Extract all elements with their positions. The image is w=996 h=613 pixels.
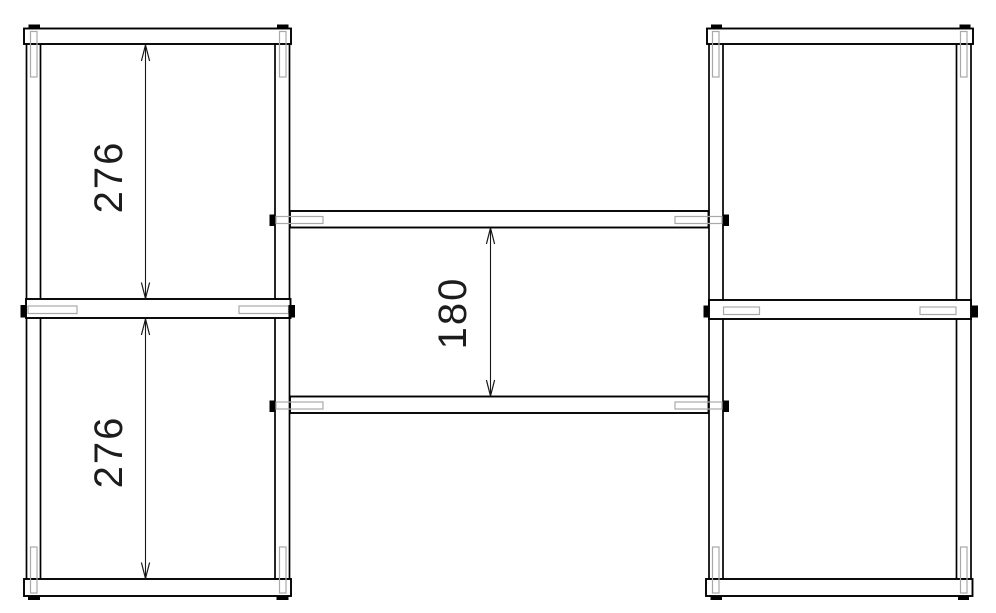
- connector-bolt: [21, 305, 27, 318]
- frame-assembly-drawing: 276 276 180: [0, 0, 996, 613]
- connector-bolt: [724, 401, 730, 413]
- dimension-lower-left-276: 276: [87, 319, 150, 579]
- right-side-frame: [706, 29, 973, 597]
- dimension-label: 276: [87, 416, 131, 489]
- connector-bolt: [972, 306, 978, 318]
- dimension-center-180: 180: [431, 228, 495, 396]
- connector-bolt: [270, 215, 276, 227]
- post-cap: [29, 25, 41, 30]
- post-cap: [711, 25, 722, 30]
- connector-bolt: [704, 306, 710, 318]
- post-cap: [960, 25, 971, 30]
- connector-bolt: [289, 305, 296, 318]
- upper-cross-rail: [290, 211, 709, 228]
- foot-pad: [711, 596, 723, 601]
- post-cap: [277, 25, 289, 30]
- dimension-label: 180: [431, 277, 475, 350]
- right-frame-top-rail: [707, 29, 973, 45]
- left-side-frame: [24, 29, 291, 597]
- cross-rails: [290, 211, 709, 413]
- left-frame-top-rail: [24, 29, 291, 45]
- lower-cross-rail: [290, 397, 709, 414]
- connector-bolt: [270, 401, 276, 413]
- left-frame-middle-rail: [26, 299, 291, 318]
- dimension-upper-left-276: 276: [87, 45, 150, 299]
- right-frame-middle-rail: [709, 300, 971, 319]
- left-frame-bottom-rail: [24, 579, 291, 596]
- foot-pad: [958, 596, 969, 601]
- dimension-label: 276: [87, 141, 131, 214]
- right-frame-bottom-rail: [706, 579, 973, 596]
- foot-pad: [28, 596, 40, 601]
- foot-pad: [277, 596, 289, 601]
- connector-bolt: [724, 215, 730, 227]
- drawing-canvas: 276 276 180: [0, 0, 996, 613]
